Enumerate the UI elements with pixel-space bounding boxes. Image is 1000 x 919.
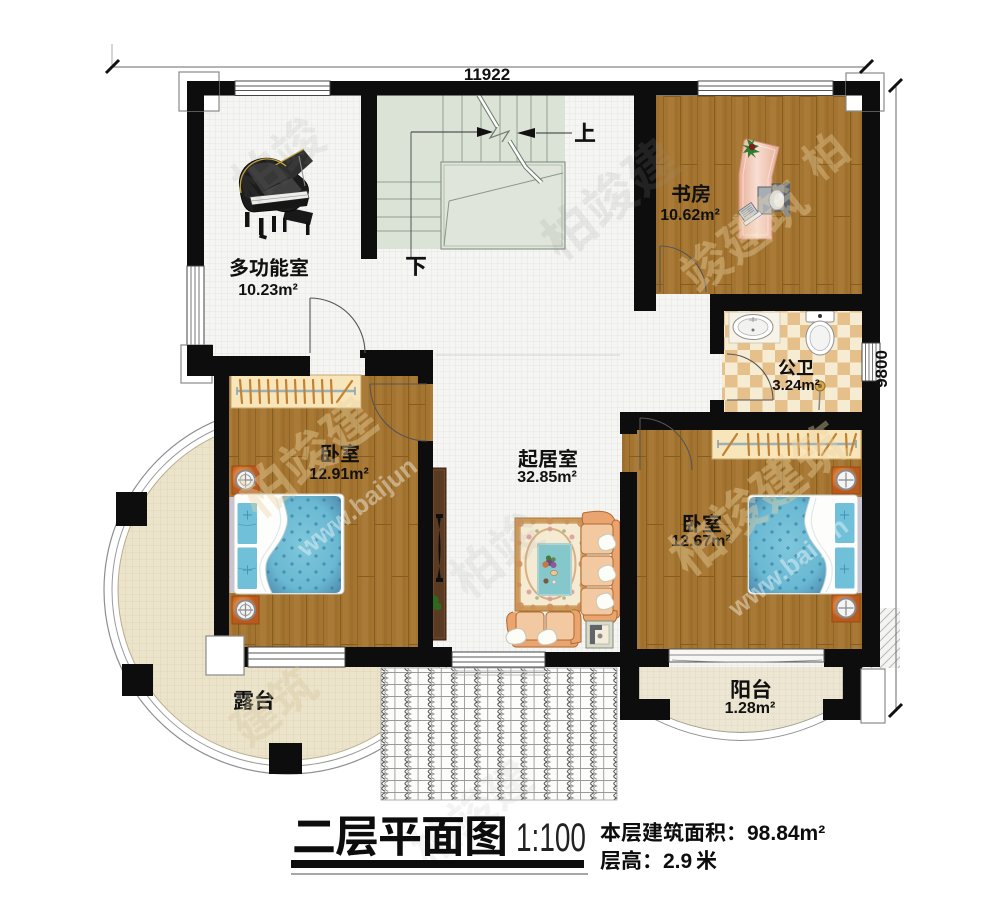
svg-text:3.24m²: 3.24m²: [772, 377, 820, 394]
svg-text:1:100: 1:100: [516, 816, 586, 860]
svg-text:32.85m²: 32.85m²: [517, 469, 577, 486]
svg-text:2.9: 2.9: [663, 850, 692, 873]
svg-text:98.84m²: 98.84m²: [747, 822, 825, 845]
svg-text:9800: 9800: [872, 350, 891, 388]
svg-text:10.62m²: 10.62m²: [660, 207, 720, 224]
svg-text:10.23m²: 10.23m²: [238, 282, 298, 299]
svg-text:1.28m²: 1.28m²: [725, 700, 776, 717]
svg-text:11922: 11922: [464, 65, 510, 84]
